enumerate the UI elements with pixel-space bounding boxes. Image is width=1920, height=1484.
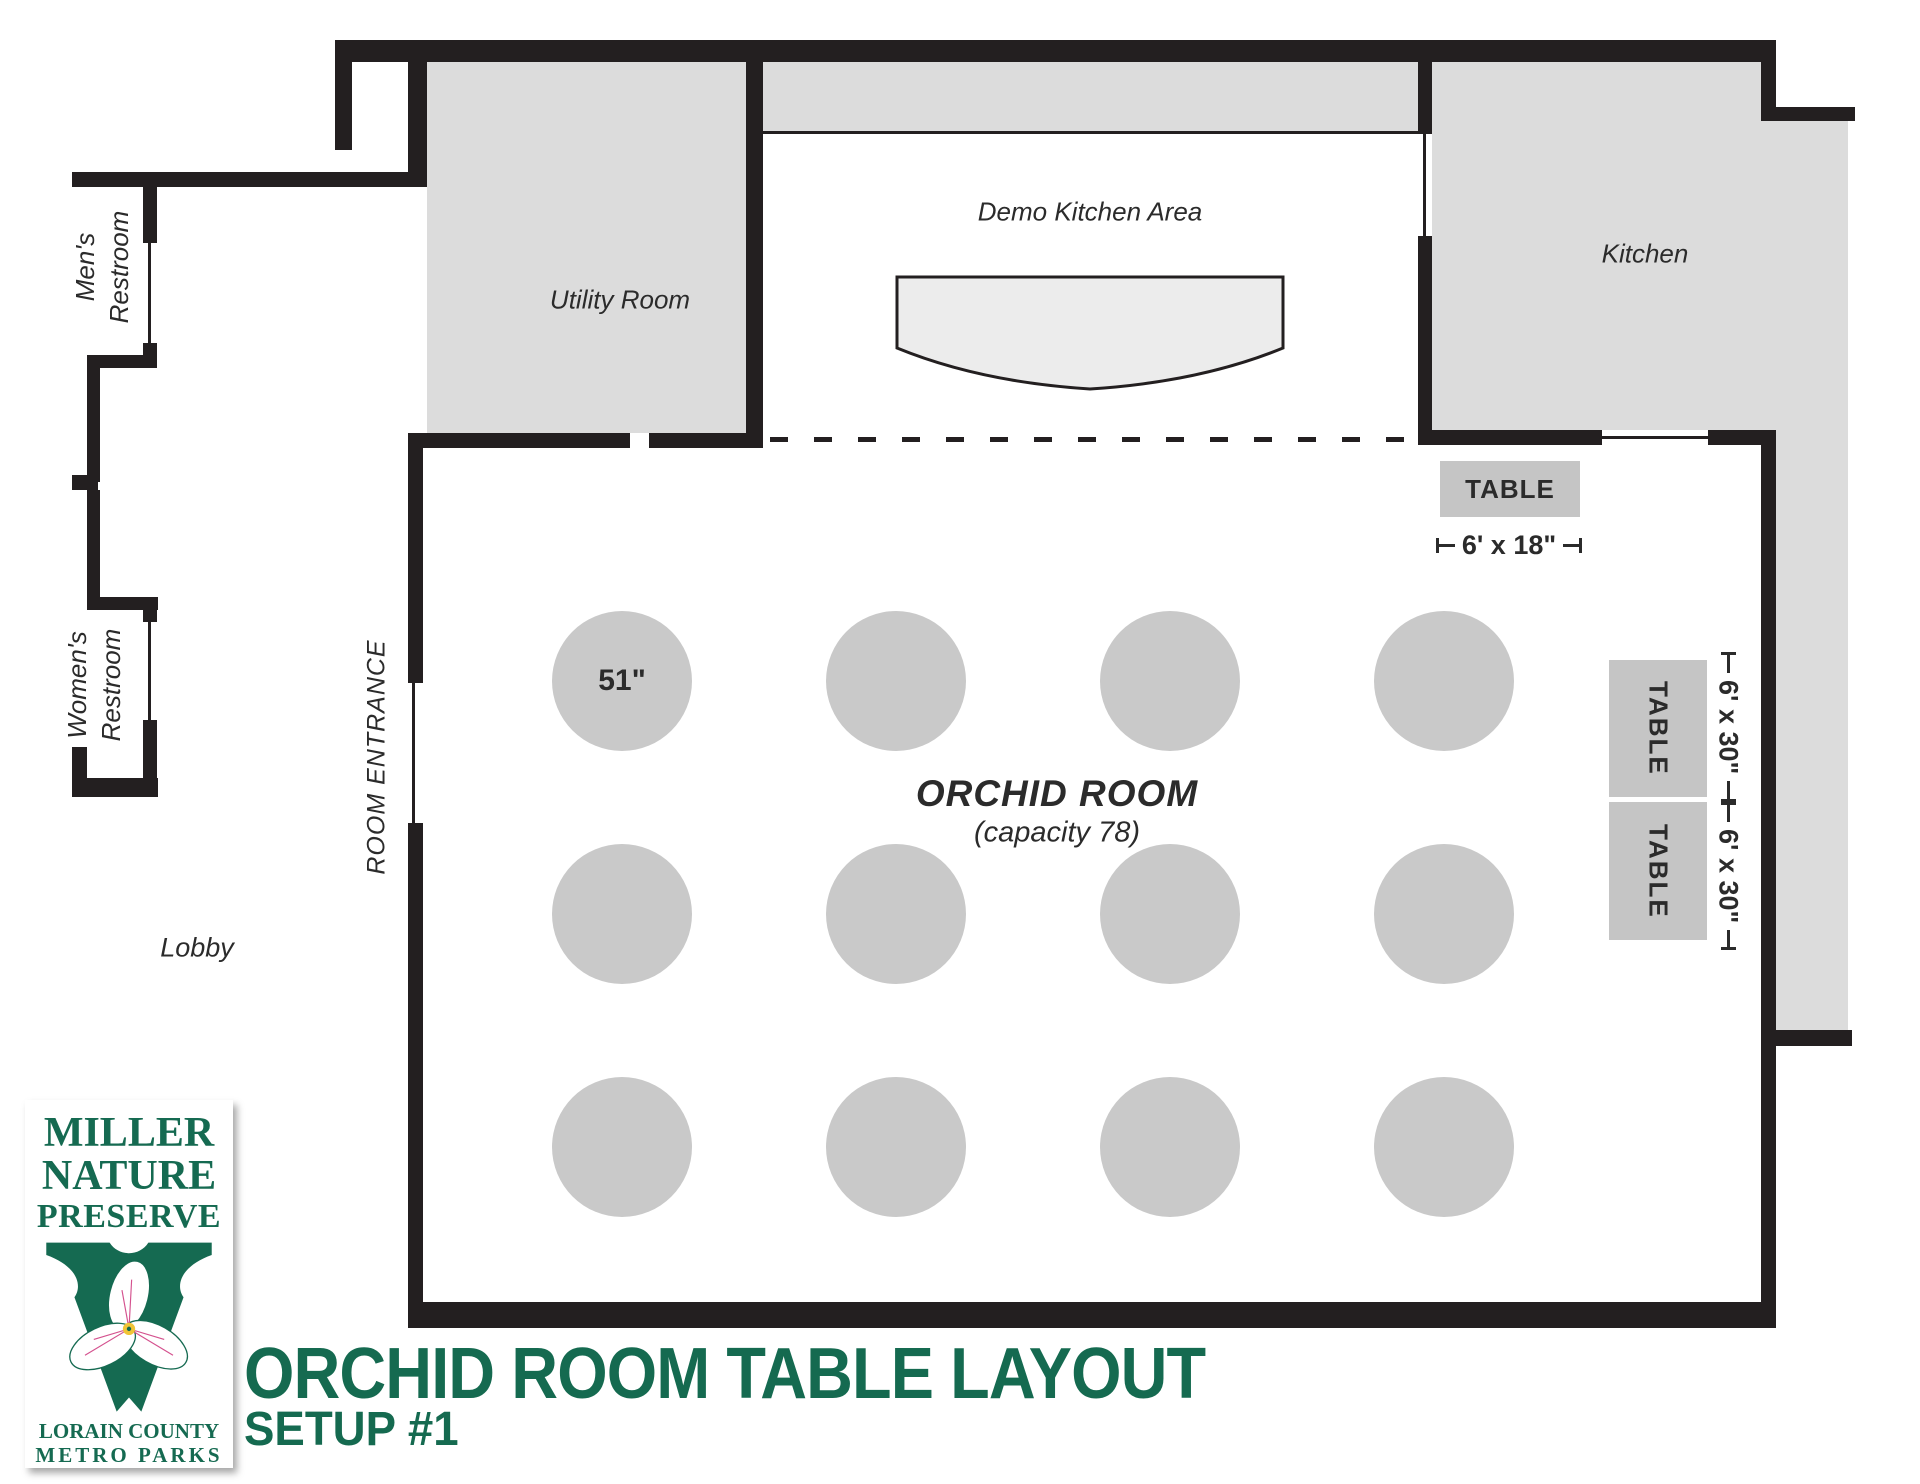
wall-kitchen-strip-bottom bbox=[1772, 1030, 1852, 1046]
wall-orchid-bottom bbox=[408, 1302, 1776, 1328]
page-title: ORCHID ROOM TABLE LAYOUT bbox=[244, 1338, 1205, 1410]
side-table-2: TABLE bbox=[1609, 802, 1707, 940]
side-table-1-label: TABLE bbox=[1643, 681, 1674, 776]
wall-top-left-stub bbox=[335, 40, 352, 150]
demo-kitchen-counter-band bbox=[763, 62, 1418, 134]
side-table-2-dimension-text: 6' x 30" bbox=[1713, 822, 1744, 930]
mens-door-line bbox=[148, 243, 151, 343]
wall-utility-left bbox=[408, 55, 427, 187]
wall-mens-door-upper bbox=[143, 187, 157, 243]
round-table bbox=[1374, 611, 1514, 751]
dimension-line bbox=[1727, 930, 1730, 947]
womens-door-line bbox=[148, 622, 151, 720]
logo-org-line2: METRO PARKS bbox=[35, 1443, 222, 1467]
page-subtitle: SETUP #1 bbox=[244, 1406, 459, 1454]
dimension-line bbox=[1563, 544, 1579, 547]
logo-name-line3: PRESERVE bbox=[37, 1198, 221, 1235]
wall-womens-left-stub bbox=[72, 747, 87, 797]
round-table-size-label: 51" bbox=[598, 664, 646, 698]
wall-corridor-left-1 bbox=[87, 368, 100, 482]
kitchen-divider-door-line bbox=[1423, 134, 1426, 236]
wall-utility-bottom-right bbox=[649, 433, 763, 448]
lobby-label: Lobby bbox=[160, 933, 234, 964]
round-table bbox=[1100, 1077, 1240, 1217]
kitchen-area-right-strip bbox=[1776, 121, 1848, 1030]
round-table: 51" bbox=[552, 611, 692, 751]
wall-womens-door-upper bbox=[143, 610, 157, 622]
dimension-line bbox=[1727, 655, 1730, 673]
mens-restroom-label-line1: Men's bbox=[69, 211, 103, 324]
kitchen-label: Kitchen bbox=[1602, 239, 1689, 270]
kitchen-door-line bbox=[1602, 436, 1708, 439]
wall-top bbox=[335, 40, 1776, 62]
orchid-room-name: ORCHID ROOM bbox=[916, 773, 1198, 815]
wall-mens-top bbox=[72, 172, 427, 187]
side-table-1-dimension: 6' x 30" bbox=[1713, 652, 1743, 802]
round-table bbox=[552, 844, 692, 984]
dimension-tick bbox=[1721, 947, 1736, 950]
wall-left-tick bbox=[72, 475, 98, 490]
room-entrance-label: ROOM ENTRANCE bbox=[363, 639, 392, 874]
floor-plan: Men's Restroom Women's Restroom Lobby Ut… bbox=[0, 0, 1920, 1484]
logo-org-line1: LORAIN COUNTY bbox=[39, 1419, 219, 1443]
wall-orchid-left-lower bbox=[408, 823, 423, 1328]
round-table bbox=[1100, 844, 1240, 984]
womens-restroom-label-line2: Restroom bbox=[95, 629, 129, 742]
wall-kitchen-bottom-left bbox=[1418, 430, 1602, 445]
round-table bbox=[552, 1077, 692, 1217]
round-table bbox=[826, 611, 966, 751]
logo-name-line1: MILLER bbox=[44, 1112, 214, 1155]
dimension-tick bbox=[1579, 538, 1582, 553]
kitchen-area bbox=[1432, 62, 1761, 430]
wall-corridor-left-2 bbox=[87, 490, 100, 610]
demo-kitchen-area-label: Demo Kitchen Area bbox=[978, 197, 1202, 228]
utility-room-label: Utility Room bbox=[550, 285, 690, 316]
orchid-room-capacity: (capacity 78) bbox=[974, 817, 1140, 850]
wall-kitchen-divider-upper bbox=[1418, 55, 1432, 134]
dimension-line bbox=[1439, 544, 1455, 547]
kitchen-area-corner bbox=[1761, 121, 1776, 430]
womens-restroom-label: Women's Restroom bbox=[61, 629, 129, 742]
wall-utility-bottom-left bbox=[408, 433, 630, 448]
mens-restroom-label-line2: Restroom bbox=[103, 211, 137, 324]
round-table bbox=[826, 844, 966, 984]
side-table-2-dimension: 6' x 30" bbox=[1713, 802, 1743, 950]
side-table-1-dimension-text: 6' x 30" bbox=[1713, 673, 1744, 781]
wall-kitchen-step-horizontal bbox=[1761, 107, 1855, 121]
round-table bbox=[1374, 844, 1514, 984]
head-table-dimension: 6' x 18" bbox=[1436, 531, 1582, 559]
round-table bbox=[1374, 1077, 1514, 1217]
room-entrance-door-line bbox=[412, 683, 415, 823]
dimension-line bbox=[1727, 781, 1730, 799]
head-table-label: TABLE bbox=[1465, 474, 1555, 505]
round-table bbox=[826, 1077, 966, 1217]
wall-orchid-right bbox=[1761, 430, 1776, 1328]
demo-area-dashed-divider bbox=[770, 437, 1415, 442]
side-table-1: TABLE bbox=[1609, 660, 1707, 797]
miller-nature-preserve-logo: MILLER NATURE PRESERVE LORAIN COUNTY MET… bbox=[25, 1100, 233, 1468]
mens-restroom-label: Men's Restroom bbox=[69, 211, 137, 324]
trillium-flower-icon bbox=[41, 1239, 217, 1417]
head-table: TABLE bbox=[1440, 461, 1580, 517]
utility-room-area bbox=[427, 62, 746, 433]
head-table-dimension-text: 6' x 18" bbox=[1455, 530, 1563, 561]
dimension-line bbox=[1727, 805, 1730, 822]
round-table bbox=[1100, 611, 1240, 751]
wall-orchid-left-upper bbox=[408, 435, 423, 683]
wall-mens-bottom bbox=[87, 355, 157, 368]
wall-womens-top bbox=[87, 597, 158, 610]
demo-counter-shape bbox=[890, 270, 1290, 402]
womens-restroom-label-line1: Women's bbox=[61, 629, 95, 742]
wall-utility-right bbox=[746, 55, 763, 445]
wall-kitchen-divider-lower bbox=[1418, 236, 1432, 445]
logo-name-line2: NATURE bbox=[42, 1155, 216, 1198]
side-table-2-label: TABLE bbox=[1643, 824, 1674, 919]
